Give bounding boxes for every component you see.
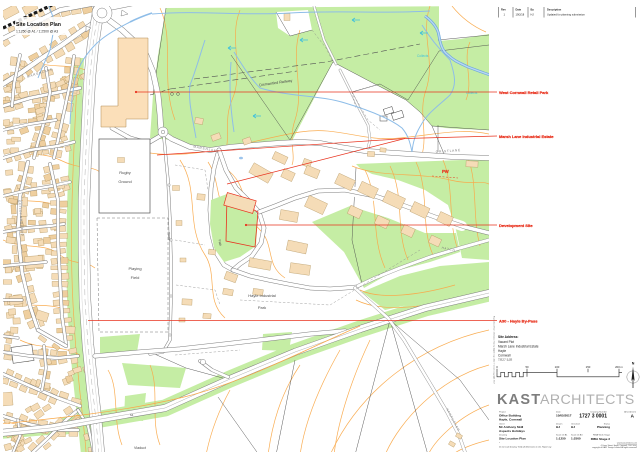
svg-text:Rev: Rev [501, 8, 506, 12]
svg-text:Viaduct: Viaduct [134, 446, 146, 450]
svg-text:50: 50 [525, 365, 529, 369]
svg-text:Marsh Lane Industrial Estate: Marsh Lane Industrial Estate [498, 344, 539, 348]
svg-text:Hayle, Cornwall: Hayle, Cornwall [499, 417, 522, 421]
svg-text:Reproduced from Ordnance Surve: Reproduced from Ordnance Survey digital … [493, 316, 496, 385]
svg-text:N: N [632, 362, 635, 366]
svg-text:Collects: Collects [417, 54, 429, 58]
svg-text:1727 3 0001: 1727 3 0001 [579, 414, 607, 420]
svg-text:A30 - Hayle By-Pass: A30 - Hayle By-Pass [499, 319, 538, 324]
svg-text:Collects: Collects [466, 91, 478, 95]
svg-text:Do not scale drawing. Verify a: Do not scale drawing. Verify all dimensi… [499, 446, 551, 449]
svg-text:Hayle Industrial: Hayle Industrial [248, 293, 276, 298]
svg-text:Aspects Holidays: Aspects Holidays [499, 429, 525, 433]
svg-text:100: 100 [555, 365, 560, 369]
svg-text:ARCHITECTS: ARCHITECTS [540, 392, 635, 408]
svg-text:1:2500: 1:2500 [571, 437, 581, 441]
svg-text:Site Address:: Site Address: [498, 335, 518, 339]
svg-text:copyright of KAST Design Limit: copyright of KAST Design Limited. All ri… [592, 446, 637, 449]
svg-text:Site Location Plan: Site Location Plan [16, 22, 61, 28]
svg-text:By: By [531, 8, 535, 12]
svg-text:RIBA Stage 3: RIBA Stage 3 [591, 437, 611, 441]
svg-text:Date: Date [516, 8, 522, 12]
svg-text:Vacant Plot: Vacant Plot [498, 340, 514, 344]
svg-text:Updated for planning submissio: Updated for planning submission [547, 13, 585, 17]
svg-text:150: 150 [586, 365, 591, 369]
svg-text:Track: Track [167, 232, 171, 240]
svg-text:Development Site: Development Site [499, 223, 533, 228]
svg-text:TR27 5JR: TR27 5JR [498, 358, 513, 362]
svg-text:1:1250: 1:1250 [556, 437, 566, 441]
svg-text:19/2/18: 19/2/18 [516, 13, 525, 17]
svg-text:Ground: Ground [118, 179, 131, 184]
svg-text:Field: Field [131, 275, 140, 280]
svg-text:HJ: HJ [556, 425, 560, 429]
svg-text:Rugby: Rugby [119, 170, 131, 175]
svg-text:HJ: HJ [571, 425, 575, 429]
svg-text:-: - [499, 440, 500, 444]
svg-text:200 m: 200 m [615, 365, 623, 369]
svg-text:Playing: Playing [128, 266, 141, 271]
svg-text:Park: Park [258, 305, 266, 310]
svg-text:Site Location Plan: Site Location Plan [499, 437, 526, 441]
svg-text:1:1250 @ A1 / 1:2500 @ A3: 1:1250 @ A1 / 1:2500 @ A3 [16, 30, 58, 34]
svg-text:Hayle: Hayle [498, 349, 506, 353]
svg-text:PW: PW [442, 169, 449, 174]
svg-text:West Cornwall Retail Park: West Cornwall Retail Park [499, 90, 549, 95]
svg-text:Planning: Planning [597, 425, 610, 429]
svg-text:Cornwall: Cornwall [498, 353, 511, 357]
svg-text:10/05/2017: 10/05/2017 [556, 414, 572, 418]
svg-text:KAST: KAST [497, 392, 541, 408]
svg-text:64: 64 [130, 413, 134, 417]
svg-text:Description: Description [547, 8, 562, 12]
svg-text:Marsh Lane Industrial Estate: Marsh Lane Industrial Estate [499, 134, 554, 139]
